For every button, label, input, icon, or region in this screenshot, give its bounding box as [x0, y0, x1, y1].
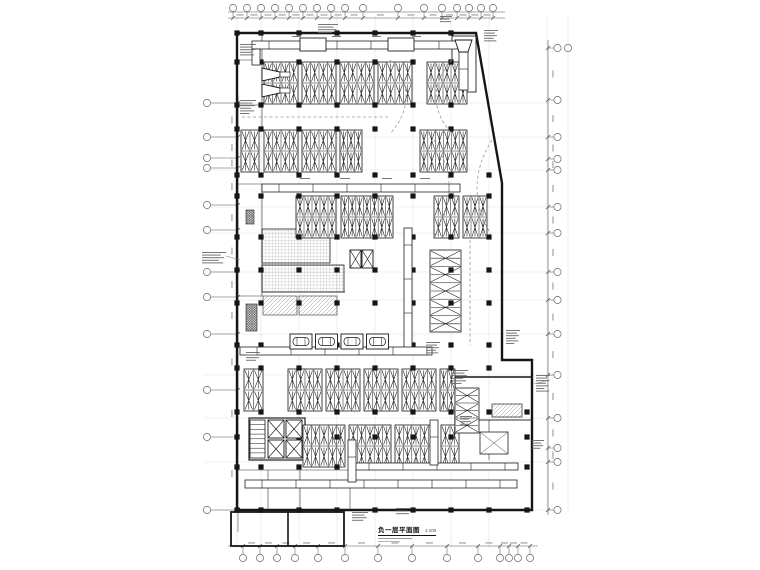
- column: [296, 172, 301, 177]
- duct-run: [348, 440, 356, 482]
- parking-stall-group: [264, 130, 298, 172]
- column: [372, 126, 377, 131]
- column: [334, 365, 339, 370]
- column: [334, 464, 339, 469]
- annotation-text-block: [292, 36, 301, 37]
- grid-bubble: [203, 386, 210, 393]
- fan-icon: [455, 40, 472, 52]
- drawing-subtitle-illegible: [378, 538, 412, 539]
- annotation-text-block: [382, 178, 392, 179]
- grid-bubble: [554, 96, 561, 103]
- grid-bubble: [239, 554, 246, 561]
- grid-bubble: [203, 201, 210, 208]
- annotation-text-block: [420, 178, 430, 179]
- grid-bubble: [285, 4, 292, 11]
- drawing-title: 负一层平面图: [378, 524, 420, 534]
- column: [258, 267, 263, 272]
- duct-run: [245, 480, 517, 488]
- grid-bubble: [341, 554, 348, 561]
- column: [258, 409, 263, 414]
- parking-stall-group: [364, 369, 398, 411]
- column: [448, 342, 453, 347]
- parking-stall-group: [434, 196, 459, 238]
- grid-bubble: [257, 4, 264, 11]
- grid-bubble: [203, 268, 210, 275]
- column: [372, 172, 377, 177]
- column: [410, 102, 415, 107]
- grid-bubble: [374, 554, 381, 561]
- column: [448, 172, 453, 177]
- column: [334, 30, 339, 35]
- column: [258, 300, 263, 305]
- column: [486, 267, 491, 272]
- annotation-text-block: [352, 512, 368, 521]
- column: [372, 59, 377, 64]
- grid-bubble: [273, 554, 280, 561]
- column: [410, 193, 415, 198]
- grid-bubble: [299, 4, 306, 11]
- grid-bubble: [477, 4, 484, 11]
- column: [296, 102, 301, 107]
- parking-stall-group: [340, 130, 362, 172]
- grid-bubble: [394, 4, 401, 11]
- column: [448, 102, 453, 107]
- duct-run: [430, 420, 438, 465]
- column: [296, 267, 301, 272]
- drawing-scale: 1:100: [425, 528, 436, 533]
- column: [410, 126, 415, 131]
- annotation-text-block: [300, 178, 310, 179]
- grid-bubble: [554, 268, 561, 275]
- parking-stall-group: [241, 130, 259, 172]
- column: [486, 365, 491, 370]
- grid-bubble: [291, 554, 298, 561]
- grid-bubble: [554, 133, 561, 140]
- grid-bubble: [271, 4, 278, 11]
- grid-bubble: [359, 4, 366, 11]
- grid-bubble: [526, 554, 533, 561]
- column: [486, 300, 491, 305]
- column: [334, 193, 339, 198]
- parking-stall-group: [288, 369, 322, 411]
- parking-stall-group: [264, 62, 298, 104]
- duct-run: [252, 49, 260, 65]
- parking-stall-group: [341, 196, 393, 238]
- parking-stall-group: [402, 369, 436, 411]
- grid-bubble: [514, 554, 521, 561]
- column: [372, 409, 377, 414]
- column: [372, 300, 377, 305]
- grid-bubble: [554, 166, 561, 173]
- parking-stall-group: [302, 62, 336, 104]
- grid-bubble: [554, 229, 561, 236]
- column: [410, 59, 415, 64]
- grid-bubble: [554, 44, 561, 51]
- column: [486, 507, 491, 512]
- column: [524, 507, 529, 512]
- equipment-unit: [480, 432, 508, 454]
- column: [486, 193, 491, 198]
- column: [296, 300, 301, 305]
- column: [448, 300, 453, 305]
- storage-room: [263, 296, 297, 315]
- grid-bubble: [203, 433, 210, 440]
- annotation-text-block: [240, 100, 256, 114]
- column: [296, 365, 301, 370]
- floor-plan-drawing: [0, 0, 760, 570]
- annotation-text-block: [532, 440, 544, 449]
- annotation-text-block: [440, 16, 452, 22]
- grid-bubble: [554, 444, 561, 451]
- column: [486, 172, 491, 177]
- parking-stall-group: [378, 62, 412, 104]
- cad-canvas: 负一层平面图 1:100: [0, 0, 760, 570]
- column: [296, 507, 301, 512]
- duct-run: [262, 184, 460, 192]
- grid-bubble: [564, 44, 571, 51]
- grid-bubble: [408, 554, 415, 561]
- grid-bubble: [203, 506, 210, 513]
- column: [524, 409, 529, 414]
- column: [296, 464, 301, 469]
- column: [258, 365, 263, 370]
- grid-bubble: [496, 554, 503, 561]
- column: [410, 172, 415, 177]
- column: [410, 507, 415, 512]
- column: [486, 342, 491, 347]
- grid-bubble: [203, 293, 210, 300]
- column: [296, 193, 301, 198]
- grid-bubble: [438, 4, 445, 11]
- column: [296, 30, 301, 35]
- column: [486, 409, 491, 414]
- column: [448, 409, 453, 414]
- column: [372, 234, 377, 239]
- column: [258, 464, 263, 469]
- grid-bubble: [554, 155, 561, 162]
- grid-bubble: [489, 4, 496, 11]
- grid-bubble: [505, 554, 512, 561]
- column: [258, 193, 263, 198]
- grid-bubble: [443, 554, 450, 561]
- column: [372, 365, 377, 370]
- column: [486, 234, 491, 239]
- parking-stall-group: [296, 196, 336, 238]
- grid-bubble: [554, 506, 561, 513]
- shaft-dense-hatch: [246, 210, 254, 224]
- duct-run: [252, 41, 468, 49]
- column: [334, 409, 339, 414]
- equipment-unit: [290, 334, 312, 349]
- grid-bubble: [203, 133, 210, 140]
- grid-bubble: [256, 554, 263, 561]
- grid-bubble: [554, 203, 561, 210]
- equipment-unit: [341, 334, 363, 349]
- equipment-unit: [316, 334, 338, 349]
- column: [334, 59, 339, 64]
- grid-bubble: [474, 554, 481, 561]
- column: [410, 30, 415, 35]
- grid-bubble: [203, 164, 210, 171]
- column: [524, 464, 529, 469]
- column: [448, 193, 453, 198]
- grid-bubble: [327, 4, 334, 11]
- column: [448, 507, 453, 512]
- column: [258, 172, 263, 177]
- column: [372, 30, 377, 35]
- column: [372, 507, 377, 512]
- column: [410, 365, 415, 370]
- parking-stall-group: [303, 425, 345, 467]
- column: [334, 126, 339, 131]
- column: [334, 172, 339, 177]
- annotation-text-block: [332, 36, 341, 37]
- grid-bubble: [554, 330, 561, 337]
- column: [372, 193, 377, 198]
- grid-bubble: [554, 414, 561, 421]
- column: [296, 409, 301, 414]
- column: [372, 102, 377, 107]
- column: [448, 30, 453, 35]
- column: [334, 434, 339, 439]
- drawing-title-block: 负一层平面图 1:100: [378, 524, 498, 542]
- column: [296, 59, 301, 64]
- parking-stall-stack: [455, 388, 479, 433]
- grid-bubble: [341, 4, 348, 11]
- annotation-text-block: [340, 178, 350, 179]
- grid-bubble: [554, 296, 561, 303]
- hatched-plaza-lower: [262, 265, 344, 292]
- column: [410, 409, 415, 414]
- column: [448, 267, 453, 272]
- parking-stall-group: [302, 130, 336, 172]
- column: [296, 126, 301, 131]
- grid-bubble: [203, 154, 210, 161]
- grid-bubble: [313, 4, 320, 11]
- equipment-unit: [367, 334, 389, 349]
- grid-bubble: [420, 4, 427, 11]
- column: [334, 300, 339, 305]
- annotation-text-block: [484, 30, 498, 41]
- column: [448, 365, 453, 370]
- column: [372, 434, 377, 439]
- column: [258, 102, 263, 107]
- duct-run: [459, 52, 468, 90]
- grid-bubble: [203, 226, 210, 233]
- column: [334, 267, 339, 272]
- column: [448, 434, 453, 439]
- annotation-text-block: [412, 36, 421, 37]
- parking-stall-group: [420, 130, 467, 172]
- column: [334, 102, 339, 107]
- grid-bubble: [229, 4, 236, 11]
- storage-room: [299, 296, 337, 315]
- parking-stall-group: [326, 369, 360, 411]
- parking-stall-group: [340, 62, 374, 104]
- column: [258, 234, 263, 239]
- column: [258, 126, 263, 131]
- column: [448, 234, 453, 239]
- parking-stall-group: [463, 196, 487, 238]
- column: [410, 434, 415, 439]
- annotation-text-block: [202, 252, 226, 263]
- grid-bubble: [203, 330, 210, 337]
- column: [524, 434, 529, 439]
- column: [448, 59, 453, 64]
- annotation-text-block: [506, 330, 520, 344]
- grid-bubble: [314, 554, 321, 561]
- column: [258, 30, 263, 35]
- column: [258, 507, 263, 512]
- equipment-unit: [492, 404, 522, 417]
- column: [334, 507, 339, 512]
- grid-bubble: [554, 371, 561, 378]
- title-underline: 负一层平面图 1:100: [378, 524, 436, 536]
- duct-run: [404, 228, 412, 348]
- drawing-subnote-illegible: [378, 541, 400, 542]
- annotation-text-block: [372, 36, 381, 37]
- grid-bubble: [465, 4, 472, 11]
- stair: [250, 420, 265, 458]
- column: [296, 234, 301, 239]
- grid-bubble: [243, 4, 250, 11]
- parking-stall-group: [244, 369, 263, 411]
- grid-bubble: [203, 99, 210, 106]
- grid-bubble: [453, 4, 460, 11]
- grid-bubble: [554, 458, 561, 465]
- column: [334, 234, 339, 239]
- parking-stall-stack: [430, 250, 461, 332]
- shaft-dense-hatch: [246, 304, 257, 331]
